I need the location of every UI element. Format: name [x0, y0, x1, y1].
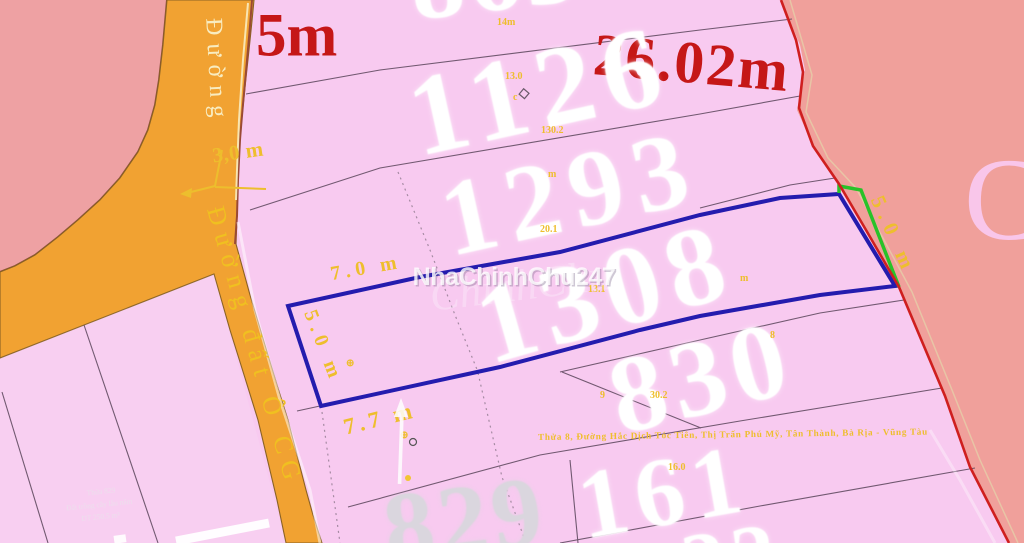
svg-text:m: m: [740, 273, 749, 284]
svg-text:m: m: [548, 169, 557, 180]
svg-text:C: C: [964, 134, 1024, 265]
svg-text:NhaChinhChu247: NhaChinhChu247: [413, 263, 616, 291]
svg-text:c: c: [513, 92, 518, 103]
svg-text:14m: 14m: [497, 17, 516, 28]
svg-text:13.0: 13.0: [505, 71, 523, 82]
svg-text:30.2: 30.2: [650, 390, 668, 401]
svg-text:130.2: 130.2: [541, 125, 564, 136]
svg-text:16.0: 16.0: [668, 462, 686, 473]
svg-text:5m: 5m: [256, 3, 337, 70]
svg-text:8: 8: [770, 330, 775, 341]
svg-text:⊕: ⊕: [346, 358, 354, 369]
svg-text:20.1: 20.1: [540, 224, 558, 235]
svg-text:9: 9: [600, 390, 605, 401]
